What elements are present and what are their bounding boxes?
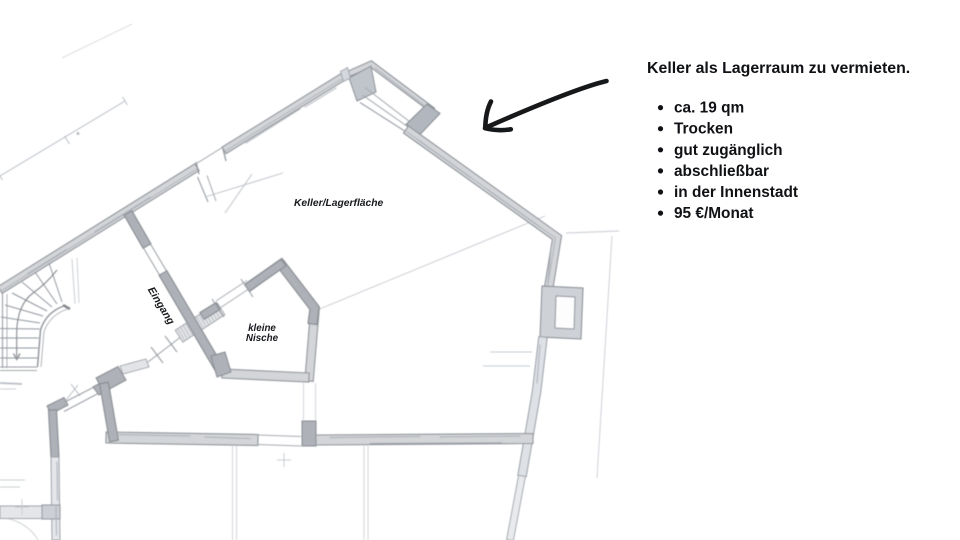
svg-text:Keller als Lagerraum zu vermie: Keller als Lagerraum zu vermieten. — [647, 60, 910, 77]
svg-text:Keller/Lagerfläche: Keller/Lagerfläche — [294, 198, 384, 209]
svg-text:95 €/Monat: 95 €/Monat — [674, 205, 754, 222]
svg-text:ca. 19 qm: ca. 19 qm — [674, 100, 744, 117]
svg-text:gut zugänglich: gut zugänglich — [674, 142, 783, 159]
svg-text:abschließbar: abschließbar — [674, 163, 769, 180]
svg-text:Nische: Nische — [246, 333, 279, 344]
svg-text:Trocken: Trocken — [674, 121, 733, 138]
svg-text:in der Innenstadt: in der Innenstadt — [674, 184, 798, 201]
